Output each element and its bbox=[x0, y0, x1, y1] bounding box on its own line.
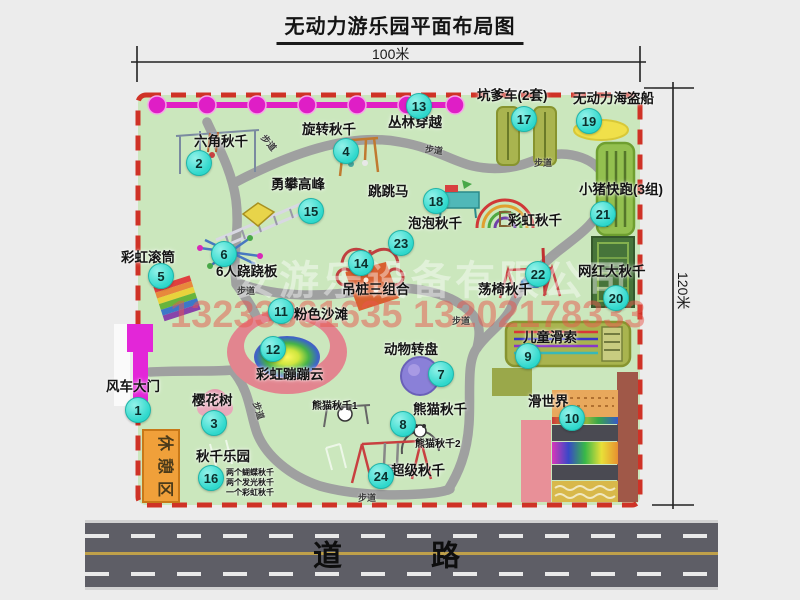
badge-pit-cart: 17 bbox=[511, 106, 537, 132]
label-windmill-gate: 风车大门 bbox=[106, 380, 160, 394]
page-title: 无动力游乐园平面布局图 bbox=[277, 10, 524, 45]
label-piggy-run: 小猪快跑(3组) bbox=[579, 183, 663, 197]
label-swing-park-note-2: 两个发光秋千 bbox=[226, 479, 274, 487]
label-big-swing: 网红大秋千 bbox=[578, 265, 646, 279]
badge-rainbow-bouncing-cloud: 12 bbox=[260, 336, 286, 362]
footpath-label-3: 步道 bbox=[534, 156, 552, 169]
footpath-label-2: 步道 bbox=[424, 142, 444, 157]
label-pink-beach: 粉色沙滩 bbox=[294, 308, 348, 322]
park-layout-diagram: 安游乐设备有限公司 13233861635 13202178333 无动力游乐园… bbox=[0, 0, 800, 600]
footpath-label-7: 步道 bbox=[358, 491, 376, 504]
label-rainbow-bouncing-cloud: 彩虹蹦蹦云 bbox=[256, 368, 324, 382]
badge-swing-park: 16 bbox=[198, 465, 224, 491]
badge-windmill-gate: 1 bbox=[125, 397, 151, 423]
label-panda-swing-1: 熊猫秋千1 bbox=[312, 402, 358, 412]
label-bubble-swing: 泡泡秋千 bbox=[408, 217, 462, 231]
badge-hanging-piles-combo: 14 bbox=[348, 250, 374, 276]
label-pit-cart: 坑爹车(2套) bbox=[477, 89, 548, 103]
dimension-top-label: 100米 bbox=[372, 44, 409, 64]
label-swing-park-note-3: 一个彩虹秋千 bbox=[226, 489, 274, 497]
badge-kids-zipline: 9 bbox=[515, 343, 541, 369]
badge-hexagon-swing: 2 bbox=[186, 150, 212, 176]
road-band: 道 路 bbox=[85, 520, 718, 590]
badge-super-swing: 24 bbox=[368, 463, 394, 489]
badge-climbing-peak: 15 bbox=[298, 198, 324, 224]
label-swing-chair: 荡椅秋千 bbox=[478, 283, 532, 297]
label-rotating-swing: 旋转秋千 bbox=[302, 123, 356, 137]
label-six-person-seesaw: 6人跷跷板 bbox=[216, 265, 278, 279]
badge-jumping-horse: 18 bbox=[423, 188, 449, 214]
badge-pirate-ship: 19 bbox=[576, 108, 602, 134]
badge-piggy-run: 21 bbox=[590, 201, 616, 227]
label-rainbow-swing: 彩虹秋千 bbox=[508, 214, 562, 228]
badge-swing-chair: 22 bbox=[525, 261, 551, 287]
footpath-label-4: 步道 bbox=[237, 284, 255, 297]
label-panda-swing-2: 熊猫秋千2 bbox=[415, 440, 461, 450]
road-label: 道 路 bbox=[313, 532, 490, 574]
label-jumping-horse: 跳跳马 bbox=[368, 185, 409, 199]
badge-rainbow-roller: 5 bbox=[148, 263, 174, 289]
badge-jungle-crossing: 13 bbox=[406, 93, 432, 119]
label-hanging-piles-combo: 吊桩三组合 bbox=[342, 283, 410, 297]
label-animal-carousel: 动物转盘 bbox=[384, 343, 438, 357]
badge-six-person-seesaw: 6 bbox=[211, 241, 237, 267]
label-swing-park-note-1: 两个蝴蝶秋千 bbox=[226, 469, 274, 477]
label-rest-area: 休憩区 bbox=[155, 435, 179, 504]
badge-rotating-swing: 4 bbox=[333, 138, 359, 164]
badge-slide-world: 10 bbox=[559, 405, 585, 431]
badge-cherry-tree: 3 bbox=[201, 410, 227, 436]
badge-animal-carousel: 7 bbox=[428, 361, 454, 387]
label-super-swing: 超级秋千 bbox=[391, 464, 445, 478]
footpath-label-5: 步道 bbox=[452, 314, 470, 327]
label-climbing-peak: 勇攀高峰 bbox=[271, 178, 325, 192]
label-swing-park: 秋千乐园 bbox=[196, 450, 250, 464]
label-slide-world: 滑世界 bbox=[528, 395, 569, 409]
label-panda-swing: 熊猫秋千 bbox=[413, 403, 467, 417]
label-pirate-ship: 无动力海盗船 bbox=[573, 92, 654, 106]
badge-bubble-swing: 23 bbox=[388, 230, 414, 256]
badge-pink-beach: 11 bbox=[268, 298, 294, 324]
label-hexagon-swing: 六角秋千 bbox=[194, 135, 248, 149]
badge-panda-swing: 8 bbox=[390, 411, 416, 437]
dimension-right-label: 120米 bbox=[673, 272, 693, 309]
label-cherry-tree: 樱花树 bbox=[192, 394, 233, 408]
label-rainbow-roller: 彩虹滚筒 bbox=[121, 251, 175, 265]
badge-big-swing: 20 bbox=[603, 285, 629, 311]
